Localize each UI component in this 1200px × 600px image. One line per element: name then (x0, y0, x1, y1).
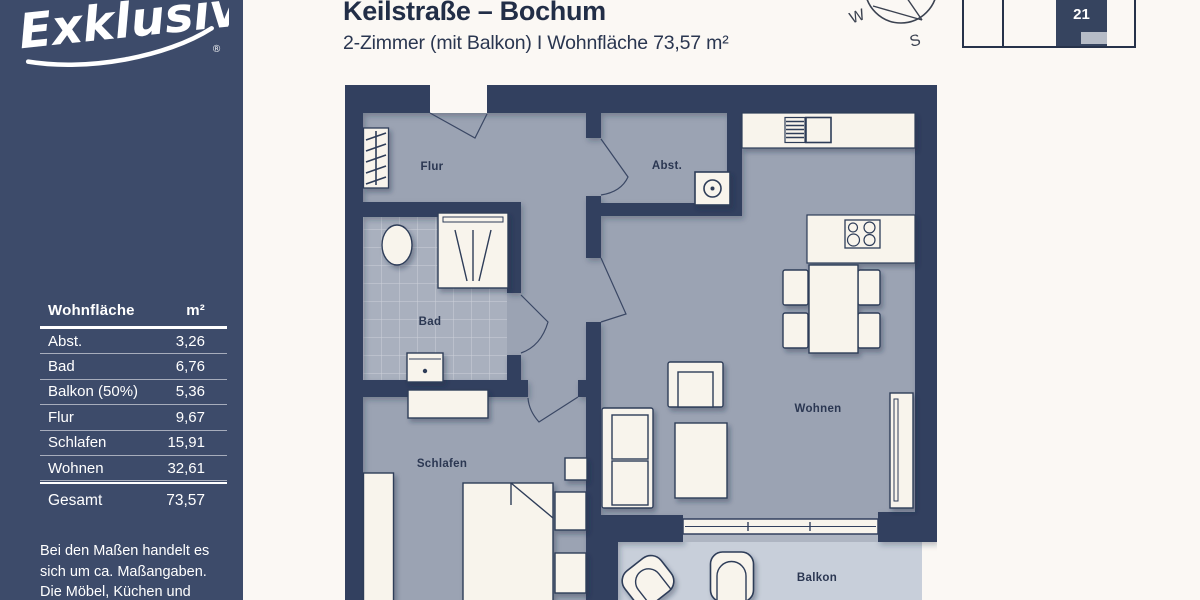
logo-registered-mark: ® (212, 43, 221, 55)
brand-logo: Exklusiv ® (14, 0, 229, 96)
row-value: 6,76 (176, 358, 205, 375)
entrance-opening (430, 85, 487, 113)
row-value: 5,36 (176, 383, 205, 400)
row-label: Bad (48, 358, 75, 375)
table-header-label: Wohnfläche (48, 302, 135, 319)
locator-cell-highlighted: 21 (1056, 0, 1107, 46)
balcony-chair-icon (711, 552, 754, 600)
room-label-wohnen: Wohnen (795, 403, 842, 415)
table-row: Wohnen 32,61 (40, 456, 227, 481)
page-title: Keilstraße – Bochum (343, 0, 606, 27)
row-value: 9,67 (176, 409, 205, 426)
sink-icon (806, 118, 831, 143)
floor-plan: Flur Abst. Bad Schlafen Wohnen Balkon (345, 85, 937, 600)
room-label-abstellraum: Abst. (652, 160, 682, 172)
table-header: Wohnfläche m² (40, 302, 227, 329)
row-label: Schlafen (48, 434, 106, 451)
total-label: Gesamt (48, 492, 102, 510)
sofa-icon (602, 408, 653, 508)
dining-table-icon (809, 265, 858, 353)
nightstand-icon (555, 492, 586, 530)
row-value: 15,91 (167, 434, 205, 451)
dresser-icon (408, 390, 488, 418)
logo-text: Exklusiv (16, 0, 229, 60)
table-row: Balkon (50%) 5,36 (40, 380, 227, 405)
bed-icon (463, 483, 553, 600)
washing-machine-icon (695, 172, 730, 205)
disclaimer-line: sich um ca. Maßangaben. (40, 562, 232, 583)
sidebar: Exklusiv ® Wohnfläche m² Abst. 3,26 Bad … (0, 0, 243, 600)
table-row: Abst. 3,26 (40, 329, 227, 354)
table-row: Flur 9,67 (40, 405, 227, 430)
table-row: Schlafen 15,91 (40, 431, 227, 456)
row-label: Abst. (48, 333, 82, 350)
washbasin-icon (407, 353, 443, 382)
unit-locator: 21 (962, 0, 1136, 48)
compass-west-label: W (848, 6, 868, 27)
row-label: Balkon (50%) (48, 383, 138, 400)
table-header-unit: m² (186, 302, 205, 319)
total-value: 73,57 (166, 492, 205, 510)
coat-rack-icon (364, 128, 389, 188)
row-value: 32,61 (167, 460, 205, 477)
locator-cell (964, 0, 1004, 46)
shower-icon (438, 213, 508, 288)
table-row: Bad 6,76 (40, 354, 227, 379)
compass-south-label: S (908, 32, 922, 51)
locator-balcony-marker (1081, 32, 1107, 44)
bedside-shelf-icon (565, 458, 587, 480)
nightstand-icon (555, 553, 586, 593)
row-label: Flur (48, 409, 74, 426)
unit-number: 21 (1073, 6, 1090, 23)
tv-board-icon (890, 393, 913, 508)
compass-icon: W S (848, 0, 952, 56)
table-total-row: Gesamt 73,57 (40, 482, 227, 515)
armchair-icon (668, 362, 723, 407)
area-table: Wohnfläche m² Abst. 3,26 Bad 6,76 Balkon… (40, 302, 227, 515)
locator-cell (1107, 0, 1134, 46)
room-label-balkon: Balkon (797, 572, 837, 584)
kitchen-counter-icon (742, 113, 915, 148)
disclaimer-line: Die Möbel, Küchen und (40, 582, 232, 600)
disclaimer-line: Bei den Maßen handelt es (40, 541, 232, 562)
row-value: 3,26 (176, 333, 205, 350)
room-label-flur: Flur (421, 161, 444, 173)
balcony-window-band (683, 515, 878, 542)
toilet-icon (382, 225, 412, 265)
room-label-schlafen: Schlafen (417, 458, 467, 470)
page-subtitle: 2-Zimmer (mit Balkon) I Wohnfläche 73,57… (343, 32, 729, 55)
hob-counter-icon (807, 215, 915, 263)
row-label: Wohnen (48, 460, 104, 477)
locator-cell (1004, 0, 1056, 46)
wardrobe-icon (364, 473, 394, 600)
disclaimer-text: Bei den Maßen handelt es sich um ca. Maß… (40, 541, 232, 600)
room-label-bad: Bad (419, 316, 442, 328)
floorplan-page: Exklusiv ® Wohnfläche m² Abst. 3,26 Bad … (0, 0, 1200, 600)
coffee-table-icon (675, 423, 727, 498)
